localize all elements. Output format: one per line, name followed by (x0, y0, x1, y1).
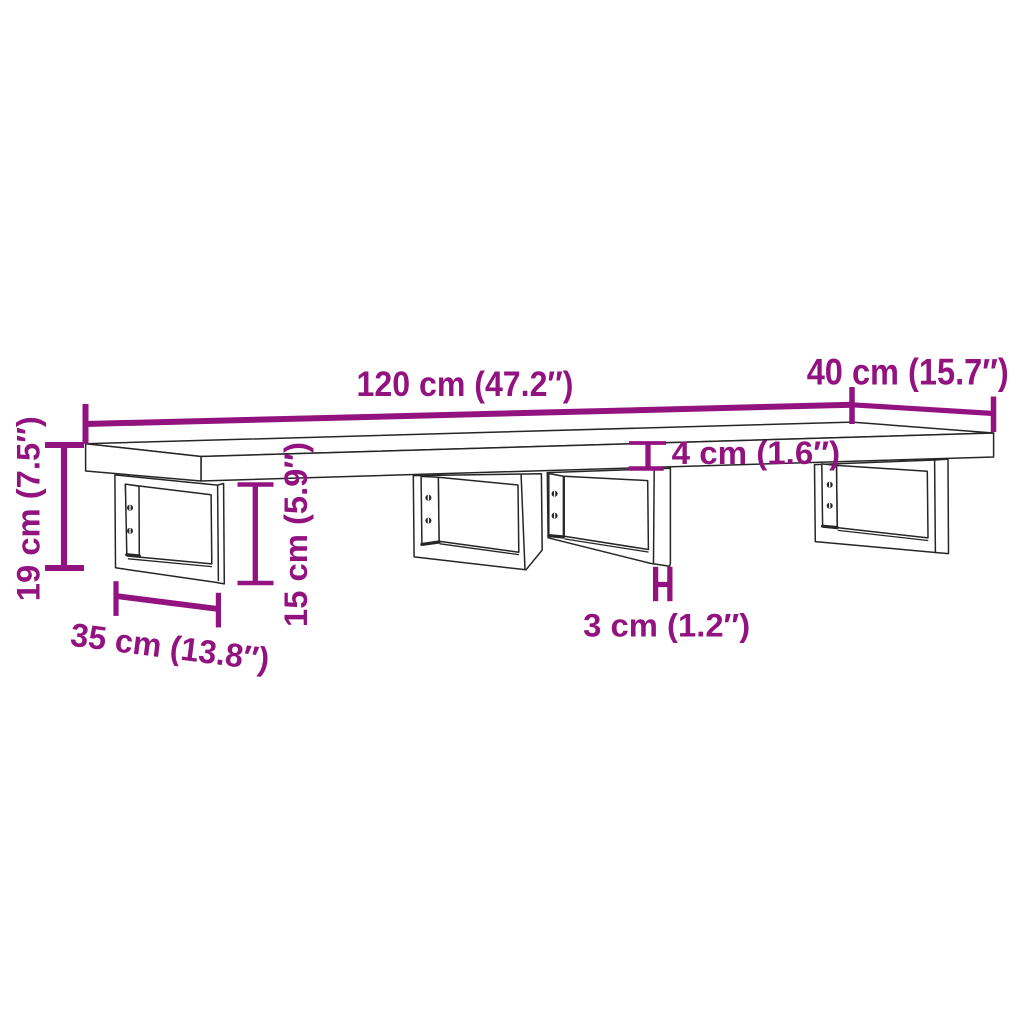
svg-text:40 cm (15.7″): 40 cm (15.7″) (807, 352, 1009, 393)
svg-text:4 cm (1.6″): 4 cm (1.6″) (672, 435, 841, 471)
svg-text:120 cm (47.2″): 120 cm (47.2″) (357, 364, 574, 404)
svg-text:19 cm (7.5″): 19 cm (7.5″) (10, 416, 46, 601)
svg-text:3 cm (1.2″): 3 cm (1.2″) (583, 608, 750, 644)
svg-text:15 cm (5.9″): 15 cm (5.9″) (278, 442, 314, 627)
